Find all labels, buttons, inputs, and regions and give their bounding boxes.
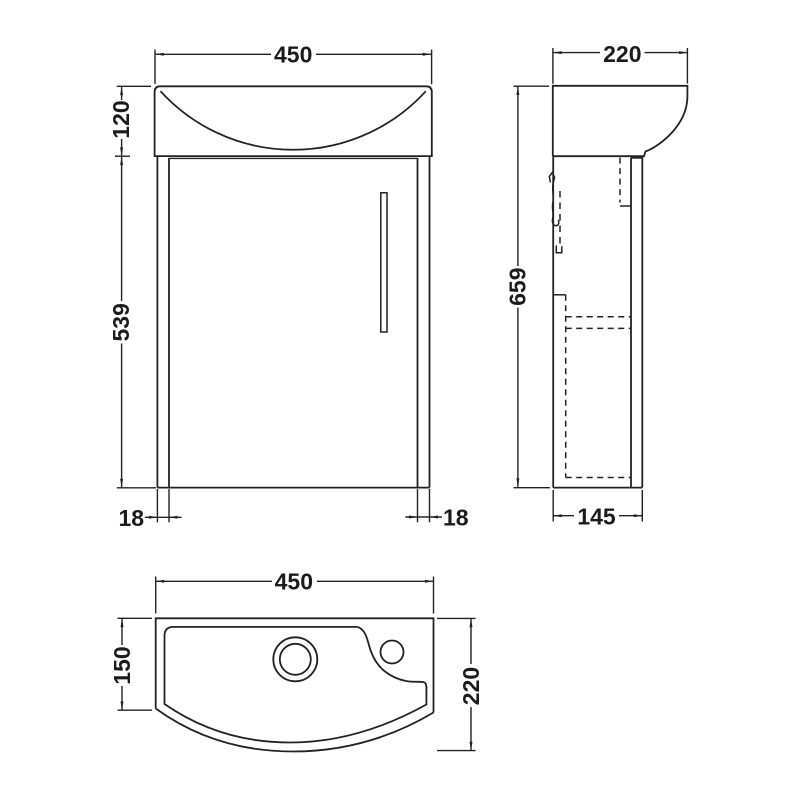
svg-text:18: 18 [119,505,145,531]
svg-text:539: 539 [108,303,134,341]
svg-text:150: 150 [109,646,135,684]
svg-text:450: 450 [275,568,313,594]
svg-text:220: 220 [458,667,484,705]
svg-text:18: 18 [443,505,469,531]
svg-text:220: 220 [603,41,641,67]
svg-text:450: 450 [274,41,312,67]
svg-text:659: 659 [505,268,531,306]
svg-text:120: 120 [108,100,134,138]
svg-text:145: 145 [577,504,616,530]
